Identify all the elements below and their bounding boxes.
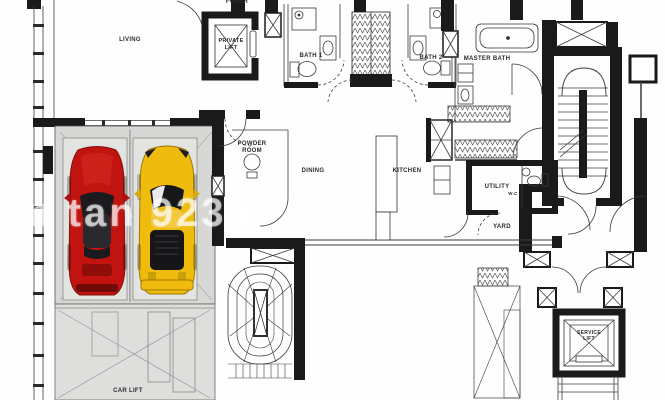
label-private-lift: PRIVATE LIFT [213,38,249,51]
label-yard: YARD [493,224,511,231]
label-powder-room: POWDER ROOM [229,141,275,155]
label-foyer: FOYER [226,0,248,6]
label-dining: DINING [302,168,325,175]
label-wc: W.C [508,191,517,196]
label-master-bath: MASTER BATH [464,56,511,63]
label-kitchen: KITCHEN [393,168,422,175]
watermark-text: in tan 9235 [12,191,252,236]
label-service-lift: SERVICE LIFT [573,330,605,342]
label-living: LIVING [119,37,141,44]
label-bath1: BATH 1 [299,53,322,60]
label-car-lift: CAR LIFT [113,388,143,395]
floor-plan-image: LIVING FOYER PRIVATE LIFT BATH 1 BATH 2 … [0,0,665,400]
label-bath2: BATH 2 [419,55,442,62]
label-utility: UTILITY [485,184,510,191]
